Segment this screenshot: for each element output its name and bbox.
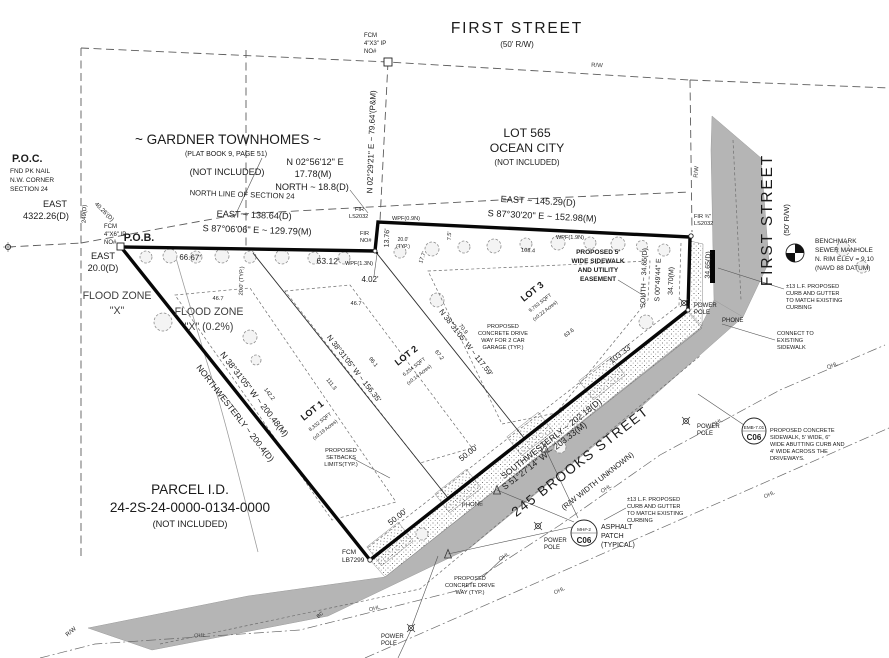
fcm-size-label: 4"X3" IP [364,41,386,47]
setback-line3: LIMITS(TYP.) [324,462,358,468]
benchmark-line3: N. RIM ELEV = 9.10 [815,256,874,263]
first-street-vert-rw: (50' R/W) [782,204,791,236]
flood-zone-x02-val: "X" (0.2%) [185,321,234,333]
bearing-s8706: S 87°06'06" E ~ 129.79(M) [202,223,311,237]
dim-1778m: 17.78(M) [295,169,332,179]
first-street-vert-label: FIRST STREET [759,154,776,286]
fir-label-2: FIR [360,231,369,237]
phone-label-2: PHONE [722,318,743,324]
curb1-line1: ±13 L.F. PROPOSED [786,284,839,290]
dim-402: 4.02' [361,275,379,284]
survey-plat-page: FIRST STREET (50' R/W) R/W R/W FCM 4"X3"… [0,0,889,658]
connect-line3: SIDEWALK [777,345,806,351]
esmt-line3: AND UTILITY [578,267,619,274]
flood-zone-x: FLOOD ZONE [83,290,152,302]
power-pole4-l1: POWER [381,634,404,640]
ohl-label: OHL [600,484,613,495]
connect-line2: EXISTING [777,338,803,344]
swnote-line4: 4' WIDE ACROSS THE [770,449,828,455]
dim-typ: (TYP.) [396,244,410,250]
fcm-label: FCM [364,33,377,39]
parcel-id-title: PARCEL I.D. [151,482,229,497]
poc-label: P.O.C. [12,153,42,165]
fir34-label: FIR ¾" [694,214,711,220]
east-label-2: EAST [91,251,115,261]
setback-line2: SETBACKS [326,455,356,461]
mh-callout-c06: C06 [577,536,592,545]
dim-4026d: 40.26'(D) [93,202,115,224]
east-4322-label: 4322.26(D) [23,211,69,221]
rw-label-bottom: R/W [65,626,78,638]
drv-line1: PROPOSED [454,576,486,582]
poc-line3: SECTION 24 [10,186,48,193]
dim-1113: 111.3 [324,377,337,391]
setback-line1: PROPOSED [325,448,357,454]
dim-467a: 46.7 [212,296,223,302]
curb2-line3: TO MATCH EXISTING [627,511,683,517]
dim-177: 17.7' [418,251,428,264]
first-street-label: FIRST STREET [451,20,583,37]
swnote-line2: SIDEWALK, 5' WIDE, 6" [770,435,830,441]
ohl-label: OHL [553,586,566,596]
power-pole1-l1: POWER [694,303,717,309]
gardner-label: ~ GARDNER TOWNHOMES ~ [135,132,321,147]
dim-north188: NORTH ~ 18.8(D) [275,182,349,192]
emb-callout-top: EMB-7.01 [744,425,765,430]
drv2-line4: GARAGE (TYP.) [483,345,524,351]
bearing-s0049: S 00°49'44" E [653,258,663,302]
fcm-label: FCM [104,224,117,230]
ohl-label: OHL [763,490,776,500]
bearing-n0256: N 02°56'12" E [286,157,343,167]
rw-label: R/W [694,166,701,178]
wpf13-label: WPF(1.3N) [345,261,373,267]
gardner-not-included: (NOT INCLUDED) [190,167,265,177]
east-13864: EAST ~ 138.64(D) [216,209,291,222]
asphalt-line1: ASPHALT [601,524,633,531]
fir-no-label: NO# [360,238,372,244]
drv2-line3: WAY FOR 2 CAR [481,338,524,344]
fcm-lb-label: FCM [342,549,356,556]
dim-1376: 13.76' [384,228,392,247]
asphalt-line3: (TYPICAL) [601,542,635,549]
dim-20typ: 20.0' (TYP.) [238,266,245,295]
connect-line1: CONNECT TO [777,331,814,337]
power-pole3-l2: POLE [544,545,560,551]
dim-3465d: 34.65(D) [705,251,713,278]
dim-75: 7.5' [447,231,453,240]
benchmark-line4: (NAVD 88 DATUM) [815,265,870,272]
benchmark-line1: BENCHMARK [815,238,857,245]
drv-line3: WAY (TYP.) [455,590,484,596]
lot565-not-included: (NOT INCLUDED) [494,158,560,167]
curb2-line2: CURB AND GUTTER [627,504,680,510]
dim-961: 96.1 [367,356,378,368]
lot-division-lines [253,251,524,498]
power-pole3-l1: POWER [544,538,567,544]
power-pole1-l2: POLE [694,310,710,316]
ls2032-label: LS2032 [349,214,368,220]
rw-label: R/W [591,63,603,69]
ohl-label: OHL [194,633,206,640]
ls2032-label-2: LS2032 [694,221,713,227]
swnote-line5: DRIVEWAYS. [770,456,805,462]
lot565-label: LOT 565 [503,126,550,140]
mh-callout-top: MH#-2 [577,527,591,532]
emb-callout-c06: C06 [747,433,762,442]
gardner-plat-label: (PLAT BOOK 9, PAGE 51) [185,151,267,158]
dim-636: 63.6 [563,327,575,338]
asphalt-line2: PATCH [601,533,624,540]
swnote-line3: WIDE ABUTTING CURB AND [770,442,845,448]
ohl-label: OHL [498,552,511,563]
fcm-no-label: NO# [364,49,377,55]
east-label: EAST [43,199,67,209]
pob-label: P.O.B. [124,232,154,244]
curb2-line1: ±13 L.F. PROPOSED [627,497,680,503]
east-20d-label: 20.0(D) [88,263,119,273]
drv2-line1: PROPOSED [487,324,519,330]
drv2-line2: CONCRETE DRIVE [478,331,528,337]
power-pole4-l2: POLE [381,641,397,647]
fir-label: FIR [355,207,364,213]
dim-672: 67.2 [433,349,444,361]
flood-zone-x02: FLOOD ZONE [175,306,244,318]
flood-zone-x-val: "X" [110,305,125,317]
first-street-rw-label: (50' R/W) [500,40,534,49]
poc-line1: FND PK NAIL [10,168,50,175]
parcel-id-value: 24-2S-24-0000-0134-0000 [110,500,271,515]
dim-6312: 63.12' [316,256,340,267]
curb1-line4: CURBING [786,305,812,311]
curb1-line2: CURB AND GUTTER [786,291,839,297]
esmt-line1: PROPOSED 5' [576,249,620,256]
parcel-not-included: (NOT INCLUDED) [153,519,228,529]
dim-3470m: 34.70(M) [668,267,676,295]
dim-467b: 46.7 [350,301,361,307]
drv-line2: CONCRETE DRIVE [445,583,495,589]
poc-marker [3,242,13,252]
fcm-monument-marker [384,58,392,66]
power-pole2-l2: POLE [697,431,713,437]
dim-249d: 249(D) [82,205,89,224]
poc-line2: N.W. CORNER [10,177,54,184]
swnote-line1: PROPOSED CONCRETE [770,428,835,434]
survey-plat-drawing: FIRST STREET (50' R/W) R/W R/W FCM 4"X3"… [0,0,889,658]
ohl-label: OHL [826,361,839,371]
curb1-line3: TO MATCH EXISTING [786,298,842,304]
esmt-line4: EASEMENT [580,276,616,283]
lot-line-156: N 38°31'05" W ~ 156.35' [325,333,383,404]
fcm-lb-value: LB7299 [342,557,365,564]
reference-lines [3,48,889,556]
ohl-label: OHL [368,605,381,614]
dim-1084: 108.4 [521,248,535,255]
east-14529: EAST ~ 145.29(D) [500,194,576,208]
dim-6667: 66.67' [179,253,201,263]
wpf19-label: WPF(1.9N) [556,235,584,241]
bearing-south-d: SOUTH ~ 34.65(D) [640,248,649,308]
lot565-city-label: OCEAN CITY [490,141,565,155]
esmt-line2: WIDE SIDEWALK [571,258,624,265]
bearing-s8730: S 87°30'20" E ~ 152.98(M) [487,208,596,224]
wpf09-label: WPF(0.9N) [392,216,420,222]
benchmark-line2: SEWER MANHOLE [815,247,873,254]
bearing-n0229: N 02°29'21" E ~ 79.64'(P&M) [365,90,378,194]
benchmark-icon [786,244,804,262]
fcm-no-label: NO# [104,240,117,246]
dim-50a: 50.00' [457,443,480,464]
dim-200: 20.0' [398,237,409,243]
